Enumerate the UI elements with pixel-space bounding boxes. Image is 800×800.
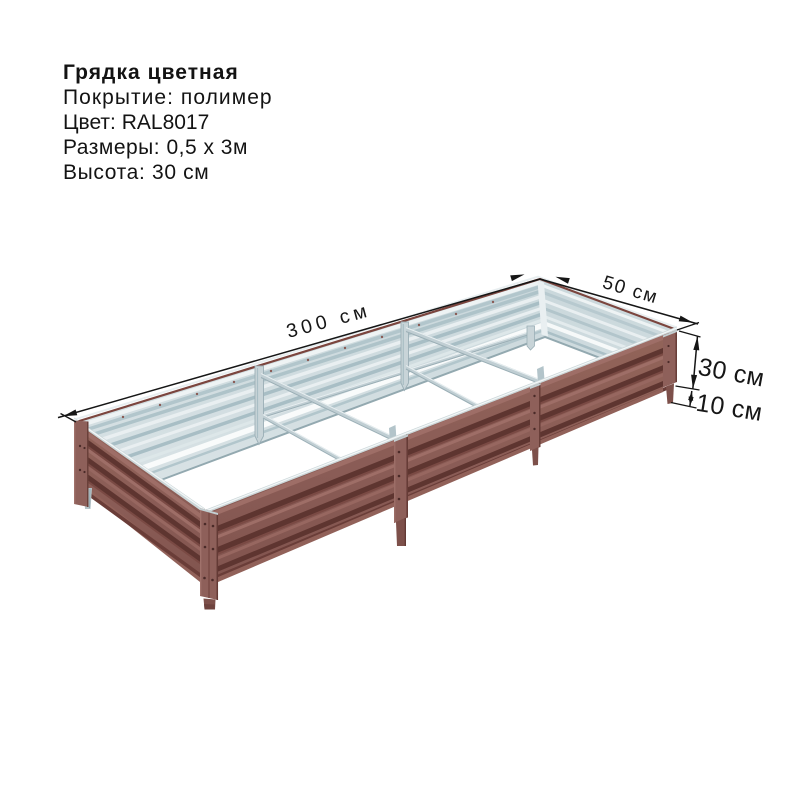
- svg-text:10 см: 10 см: [694, 389, 765, 427]
- svg-text:30 см: 30 см: [696, 353, 767, 393]
